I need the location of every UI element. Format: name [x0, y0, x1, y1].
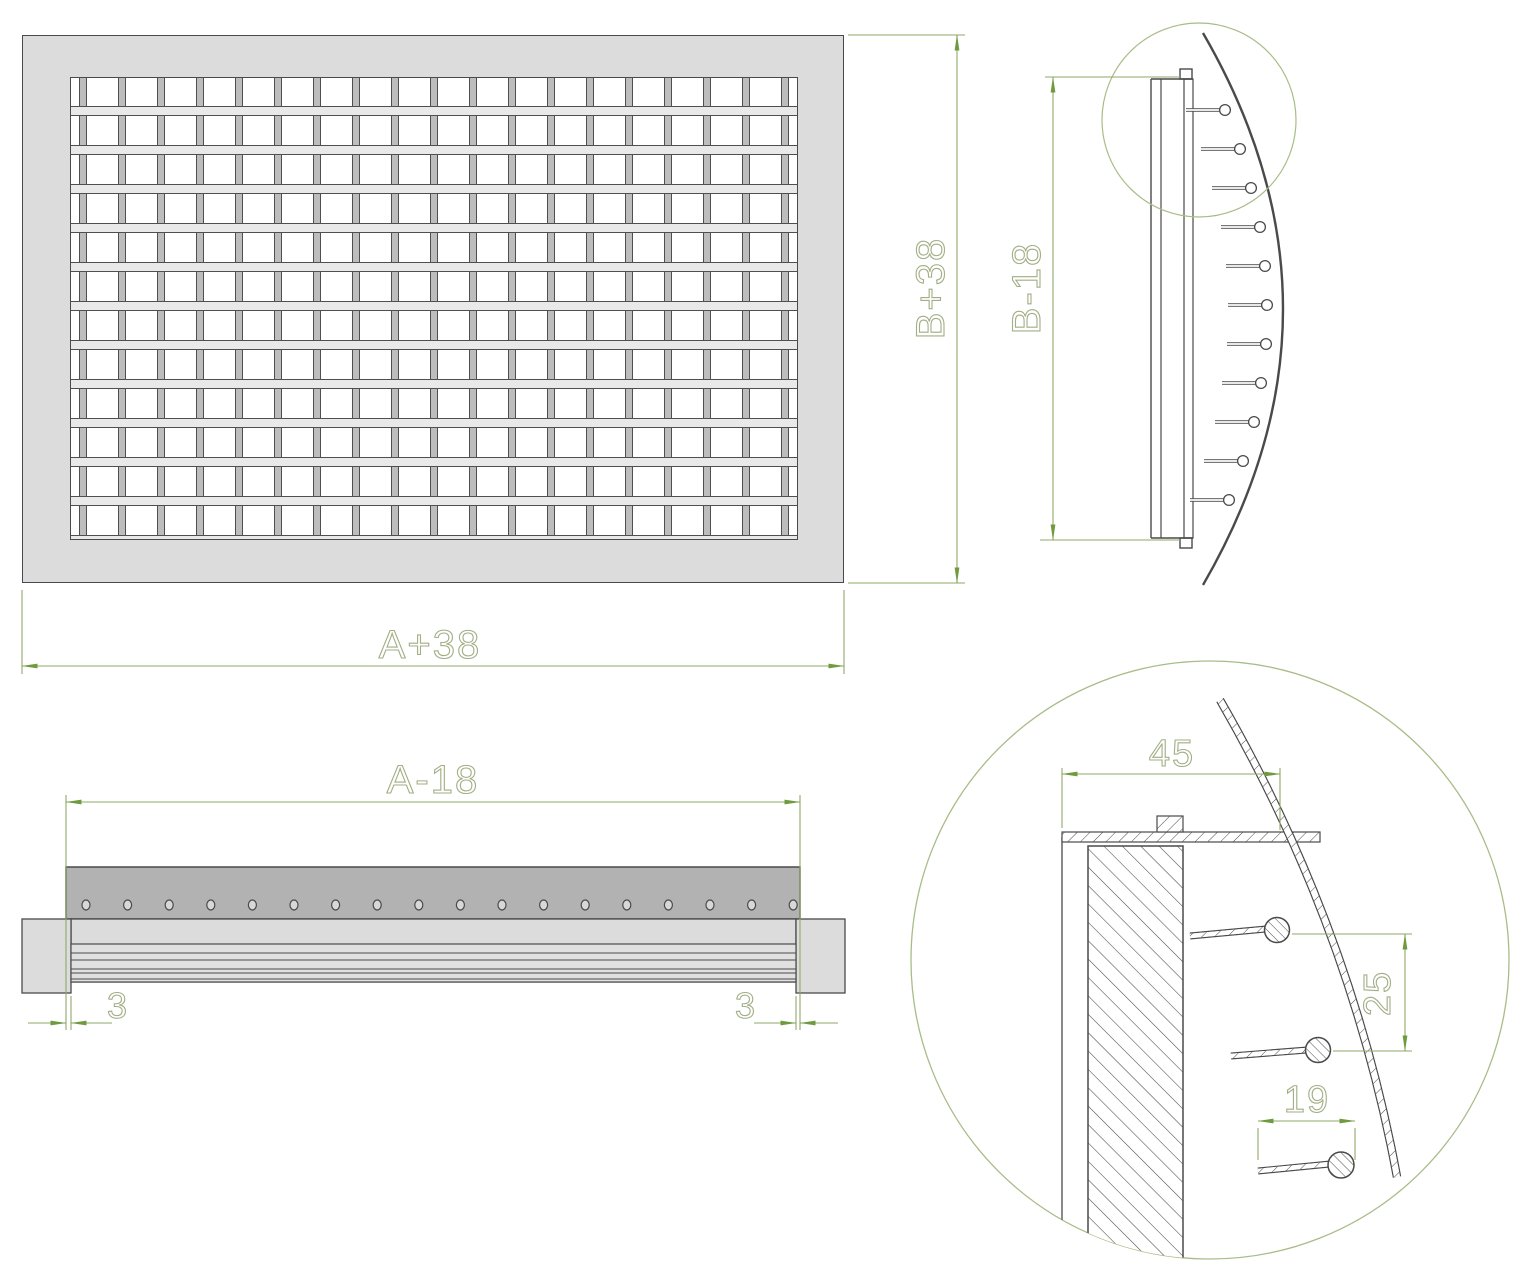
front-width-label: A+38	[379, 623, 482, 667]
front-view-height-dimension: B+38	[848, 35, 965, 583]
side-view-height-dimension: B-18	[1005, 77, 1180, 540]
detail-pin-length-dimension: 19	[1258, 1079, 1355, 1160]
front-view-width-dimension: A+38	[22, 590, 844, 674]
side-view-top-tab	[1180, 69, 1192, 79]
side-view-bottom-tab	[1180, 538, 1192, 548]
detail-pin-spacing-label: 25	[1357, 970, 1399, 1016]
detail-frame-section	[1088, 846, 1183, 1260]
detail-depth-label: 45	[1149, 733, 1195, 775]
section-offset-right-label: 3	[735, 985, 757, 1026]
detail-pin-length-label: 19	[1284, 1079, 1330, 1121]
side-view	[1102, 23, 1296, 585]
side-height-label: B-18	[1005, 242, 1049, 335]
drawing-linework: A+38 B+38	[0, 0, 1536, 1276]
section-left-endcap	[22, 919, 71, 993]
side-view-pins	[1186, 105, 1272, 506]
detail-pins	[1190, 918, 1354, 1179]
detail-circle	[911, 661, 1509, 1259]
detail-view: 45 25 19	[911, 661, 1509, 1260]
section-right-endcap	[796, 919, 845, 993]
section-louver-field	[71, 944, 796, 982]
front-height-label: B+38	[909, 237, 953, 340]
drawing-canvas: A+38 B+38	[0, 0, 1536, 1276]
section-width-label: A-18	[387, 758, 480, 802]
detail-tab	[1157, 816, 1183, 832]
section-offset-left-label: 3	[107, 985, 129, 1026]
detail-back-panel-strip	[1062, 832, 1320, 842]
section-view	[22, 867, 845, 993]
section-back-panel	[66, 867, 800, 919]
